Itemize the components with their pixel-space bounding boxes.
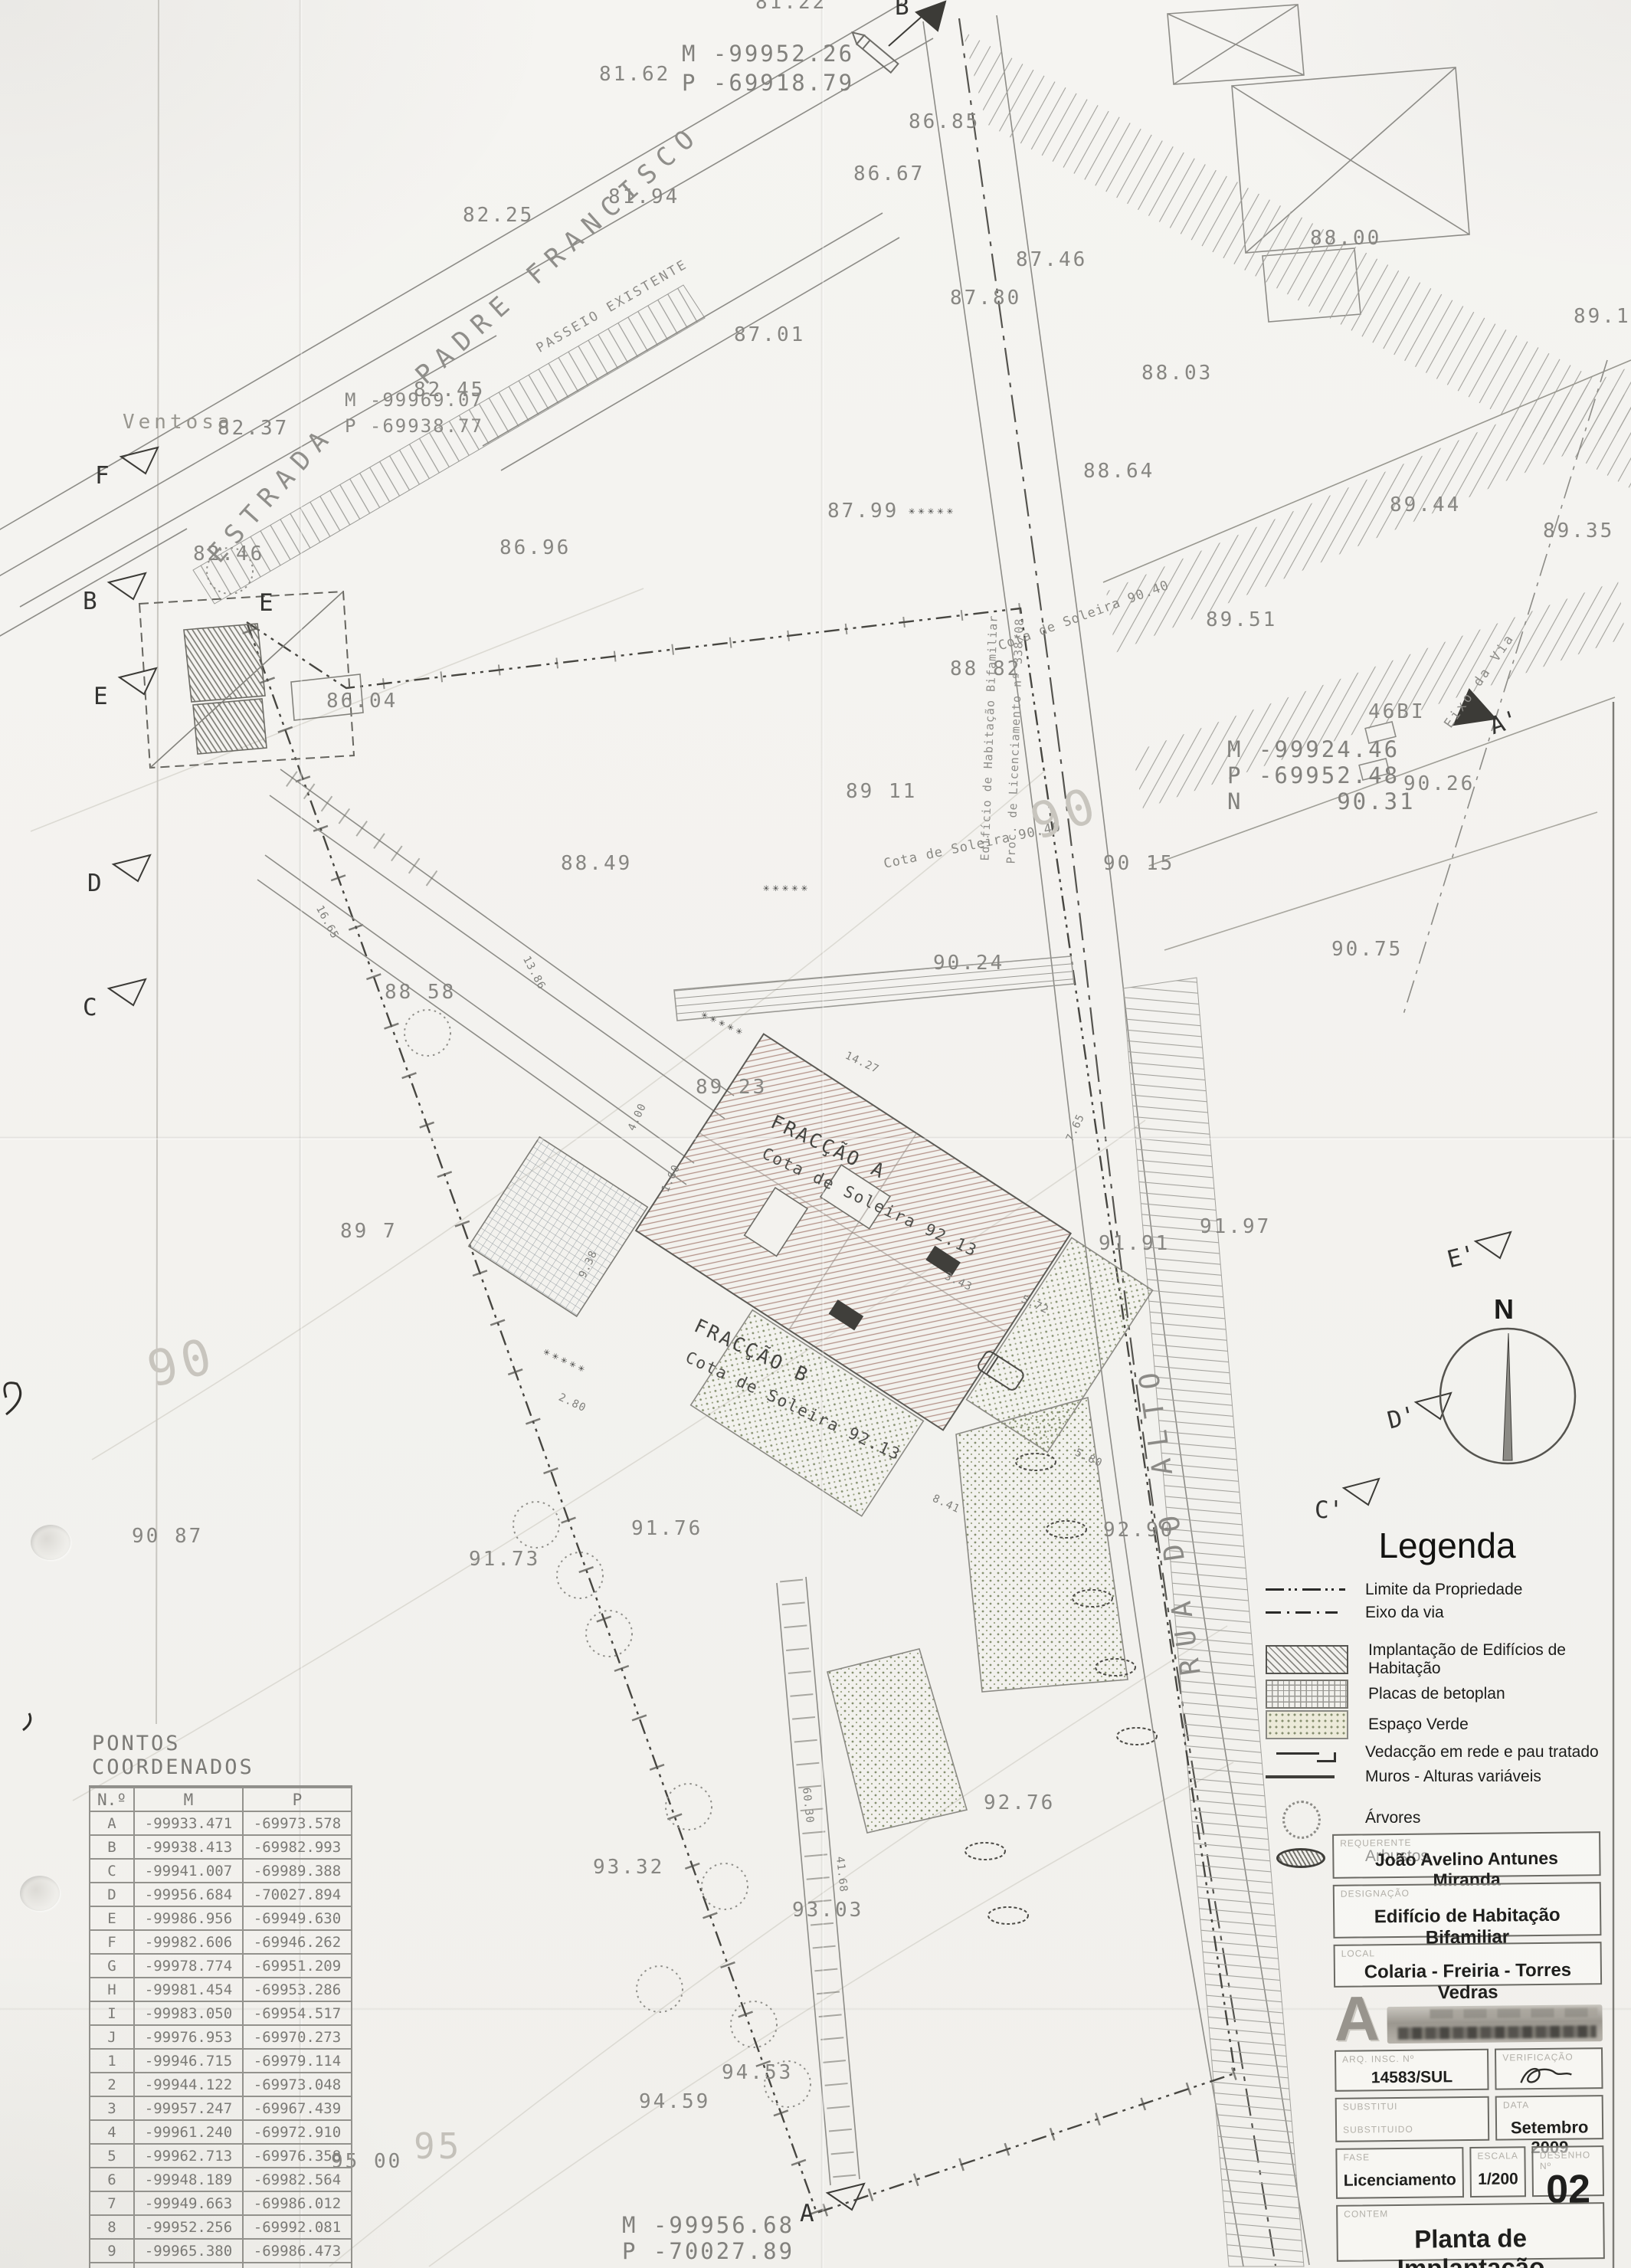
sheet-edge-line <box>156 0 159 1724</box>
contem-box: CONTEM Planta de Implantação <box>1336 2202 1605 2262</box>
fase-box: FASE Licenciamento <box>1335 2147 1464 2199</box>
stipple-swatch-icon <box>1266 1710 1348 1739</box>
contem-value: Planta de Implantação <box>1344 2223 1597 2268</box>
limite-swatch-icon <box>1266 1578 1345 1601</box>
wall-swatch-icon <box>1266 1765 1345 1788</box>
table-row: 3-99957.247-69967.439 <box>90 2096 352 2120</box>
fence-swatch-icon <box>1266 1741 1345 1764</box>
points-table-body: A-99933.471-69973.578B-99938.413-69982.9… <box>90 1811 352 2268</box>
tree-swatch-icon <box>1266 1801 1345 1836</box>
grid-swatch-icon <box>1266 1680 1348 1709</box>
road-estrada-padre-francisco <box>0 3 933 642</box>
points-table-grid: N.ºMP A-99933.471-69973.578B-99938.413-6… <box>89 1787 352 2268</box>
column-header: N.º <box>90 1788 134 1811</box>
legend: Legenda Limite da PropriedadeEixo da via… <box>1266 1525 1629 1868</box>
substitui-label: SUBSTITUI <box>1343 2100 1482 2112</box>
arq-box: ARQ. INSC. Nº 14583/SUL <box>1335 2049 1489 2092</box>
legend-item: Placas de betoplan <box>1266 1680 1629 1709</box>
table-row: E-99986.956-69949.630 <box>90 1906 352 1930</box>
table-row: H-99981.454-69953.286 <box>90 1978 352 2001</box>
points-table: PONTOS COORDENADOS N.ºMP A-99933.471-699… <box>89 1729 352 2268</box>
legend-item: Implantação de Edifícios de Habitação <box>1266 1641 1629 1678</box>
table-row: D-99956.684-70027.894 <box>90 1883 352 1906</box>
legend-items: Limite da PropriedadeEixo da viaImplanta… <box>1266 1578 1629 1868</box>
table-row: J-99976.953-69970.273 <box>90 2025 352 2049</box>
table-row: 10-99964.186-69979.805 <box>90 2263 352 2268</box>
hatch-swatch-icon <box>1266 1645 1348 1674</box>
legend-item: Vedacção em rede e pau tratado <box>1266 1741 1629 1764</box>
compass-rose <box>1440 1329 1575 1463</box>
points-table-title: PONTOS COORDENADOS <box>89 1729 352 1787</box>
legend-title: Legenda <box>1266 1525 1629 1566</box>
fase-label: FASE <box>1343 2151 1456 2163</box>
contem-label: CONTEM <box>1344 2206 1597 2219</box>
table-row: I-99983.050-69954.517 <box>90 2001 352 2025</box>
table-row: F-99982.606-69946.262 <box>90 1930 352 1954</box>
desenho-box: DESENHO Nº 02 <box>1532 2145 1604 2197</box>
designacao-box: DESIGNAÇÃO Edifício de Habitação Bifamil… <box>1333 1882 1602 1939</box>
table-row: G-99978.774-69951.209 <box>90 1954 352 1978</box>
arq-value: 14583/SUL <box>1342 2068 1481 2088</box>
local-box: LOCAL Colaria - Freiria - Torres Vedras <box>1334 1942 1603 1988</box>
escala-value: 1/200 <box>1478 2170 1519 2189</box>
table-row: 5-99962.713-69976.358 <box>90 2144 352 2168</box>
signature <box>1515 2062 1584 2087</box>
legend-item: Muros - Alturas variáveis <box>1266 1765 1629 1788</box>
table-row: 6-99948.189-69982.564 <box>90 2168 352 2191</box>
table-row: B-99938.413-69982.993 <box>90 1835 352 1859</box>
data-box: DATA Setembro 2009 <box>1495 2095 1603 2140</box>
designacao-label: DESIGNAÇÃO <box>1341 1886 1593 1899</box>
local-label: LOCAL <box>1341 1945 1594 1958</box>
arq-label: ARQ. INSC. Nº <box>1342 2053 1481 2065</box>
table-row: 8-99952.256-69992.081 <box>90 2215 352 2239</box>
fase-value: Licenciamento <box>1344 2171 1456 2191</box>
substitui-box: SUBSTITUI SUBSTITUIDO <box>1335 2096 1490 2142</box>
escala-box: ESCALA 1/200 <box>1469 2146 1526 2198</box>
legend-item: Árvores <box>1266 1801 1629 1836</box>
table-row: A-99933.471-69973.578 <box>90 1811 352 1835</box>
requerente-box: REQUERENTE João Avelino Antunes Miranda <box>1332 1831 1601 1879</box>
substituido-label: SUBSTITUIDO <box>1343 2123 1482 2135</box>
table-row: 2-99944.122-69973.048 <box>90 2073 352 2096</box>
compass-north-label: N <box>1494 1293 1514 1326</box>
nw-structure <box>139 592 363 768</box>
legend-item: Eixo da via <box>1266 1601 1629 1624</box>
requerente-label: REQUERENTE <box>1340 1835 1593 1848</box>
local-value: Colaria - Freiria - Torres Vedras <box>1341 1959 1595 2004</box>
column-header: M <box>134 1788 243 1811</box>
data-label: DATA <box>1503 2099 1596 2110</box>
scan-blobs <box>5 1383 31 1730</box>
legend-item: Limite da Propriedade <box>1266 1578 1629 1601</box>
table-row: 7-99949.663-69986.012 <box>90 2191 352 2215</box>
points-table-header: N.ºMP <box>90 1788 352 1811</box>
table-row: C-99941.007-69989.388 <box>90 1859 352 1883</box>
table-row: 9-99965.380-69986.473 <box>90 2239 352 2263</box>
stamp-name-bar <box>1387 2004 1603 2043</box>
verificacao-label: VERIFICAÇÃO <box>1502 2051 1595 2063</box>
punch-hole <box>31 1525 70 1560</box>
verificacao-box: VERIFICAÇÃO <box>1495 2047 1603 2089</box>
legend-item: Espaço Verde <box>1266 1710 1629 1739</box>
access-corridors <box>257 769 1074 1185</box>
punch-hole <box>20 1876 60 1911</box>
table-row: 1-99946.715-69979.114 <box>90 2049 352 2073</box>
title-block: REQUERENTE João Avelino Antunes Miranda … <box>1332 1831 1605 2268</box>
site-plan-sheet: 81.22B81.62M -99952.26P -69918.7986.8586… <box>0 0 1631 2268</box>
escala-label: ESCALA <box>1477 2150 1518 2161</box>
column-header: P <box>243 1788 352 1811</box>
table-row: 4-99961.240-69972.910 <box>90 2120 352 2144</box>
pencil-mark <box>849 28 899 73</box>
eixo-swatch-icon <box>1266 1601 1345 1624</box>
